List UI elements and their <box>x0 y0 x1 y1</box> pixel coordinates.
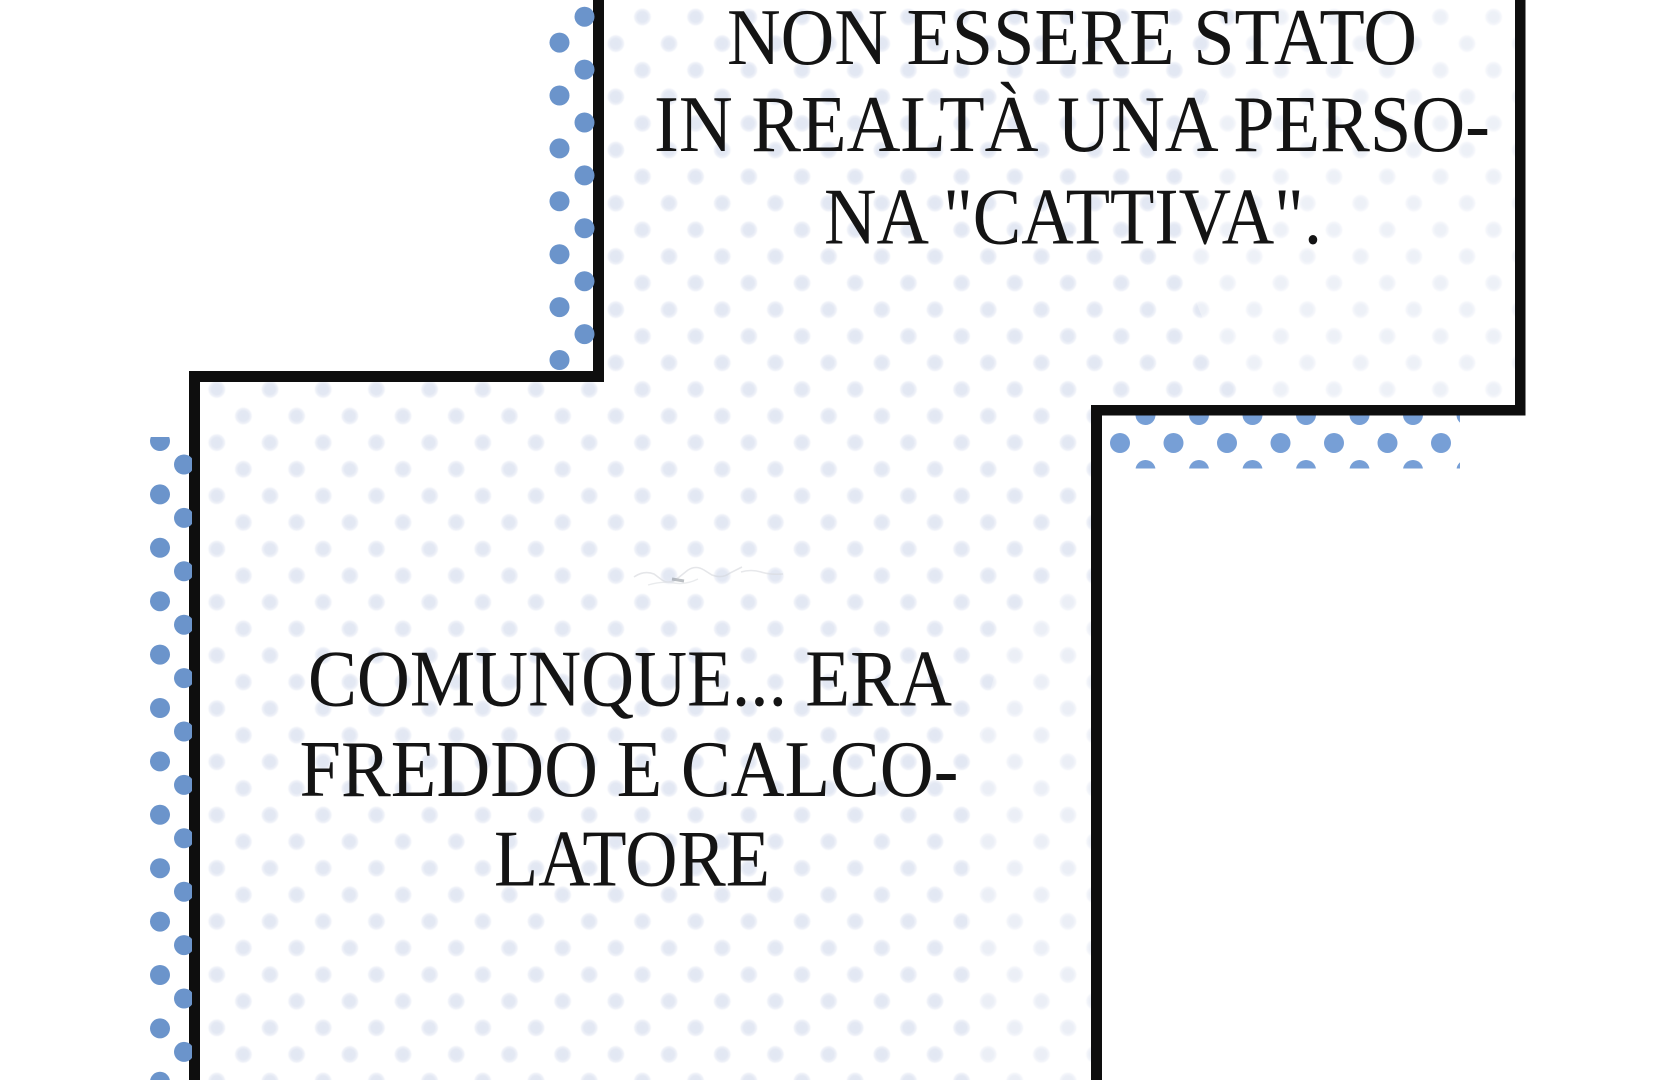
svg-text:NON ESSERE STATO: NON ESSERE STATO <box>727 0 1417 82</box>
svg-text:LATORE: LATORE <box>494 814 770 904</box>
svg-text:NA "CATTIVA".: NA "CATTIVA". <box>824 172 1322 262</box>
svg-text:IN REALTÀ UNA PERSO-: IN REALTÀ UNA PERSO- <box>654 79 1490 169</box>
svg-text:FREDDO E CALCO-: FREDDO E CALCO- <box>300 724 959 814</box>
svg-text:COMUNQUE... ERA: COMUNQUE... ERA <box>308 634 952 724</box>
